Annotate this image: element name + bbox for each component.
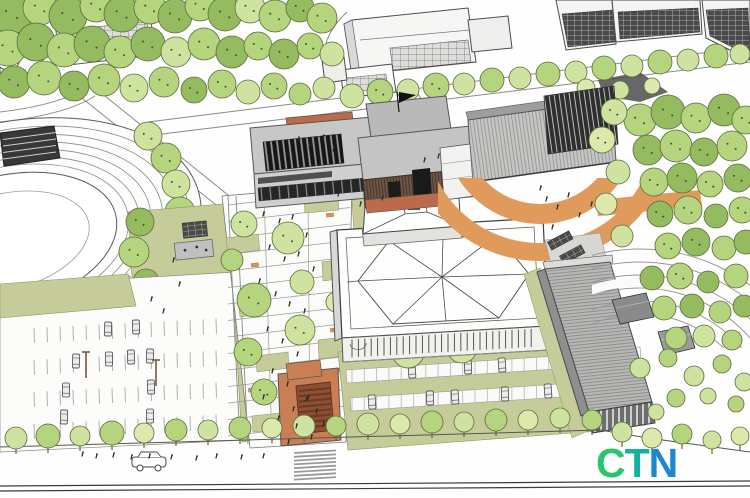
tree (307, 3, 337, 33)
tree (630, 358, 650, 378)
tree (700, 388, 716, 404)
car (132, 320, 139, 334)
tree (509, 67, 531, 89)
tree (697, 271, 719, 293)
tree (712, 236, 736, 260)
tree (680, 294, 704, 318)
tree (131, 27, 165, 61)
tree (606, 160, 630, 184)
tree (655, 233, 681, 259)
tree (724, 264, 748, 288)
tree (601, 99, 627, 125)
tree (713, 355, 731, 373)
bench (251, 263, 258, 267)
tree (188, 28, 220, 60)
car (72, 354, 79, 368)
car (146, 349, 153, 363)
car (544, 384, 552, 398)
tree (367, 79, 393, 105)
tree (340, 84, 364, 108)
car (104, 322, 111, 336)
tree (27, 61, 61, 95)
ctn-logo: CTN (596, 442, 677, 486)
tree (651, 95, 685, 129)
tree (633, 135, 663, 165)
car (451, 390, 459, 404)
car (426, 391, 433, 405)
tree (684, 366, 704, 386)
tree (59, 71, 89, 101)
car (106, 352, 113, 366)
tree (682, 228, 710, 256)
tree (480, 68, 504, 92)
car (147, 409, 154, 423)
tree (151, 143, 181, 173)
tree (536, 62, 560, 86)
tree (592, 56, 616, 80)
tree (659, 349, 677, 367)
tree (704, 204, 728, 228)
tree (320, 42, 344, 66)
tree (640, 168, 668, 196)
tree (269, 39, 299, 69)
tree (681, 103, 711, 133)
tree (0, 66, 30, 98)
logo-letter-n: N (649, 442, 678, 485)
tree (423, 73, 449, 99)
tree (728, 396, 744, 412)
tree (648, 404, 664, 420)
tree (648, 50, 672, 74)
forest-top-left (0, 0, 344, 105)
site-plan-rendering (0, 0, 750, 498)
tree (724, 164, 750, 192)
tree (231, 211, 257, 237)
car (501, 387, 508, 401)
bench (326, 213, 333, 217)
car (63, 383, 70, 397)
tree (652, 296, 676, 320)
tree (251, 379, 277, 405)
tree (120, 74, 148, 102)
tree (297, 33, 323, 59)
tree (216, 36, 248, 68)
car (498, 358, 506, 372)
tree (677, 49, 699, 71)
tree (674, 196, 702, 224)
tree (722, 330, 742, 350)
tree (730, 44, 750, 64)
tree (709, 301, 731, 323)
logo-letter-t: T (625, 442, 649, 485)
tree (693, 325, 715, 347)
tree (88, 64, 120, 96)
tree (237, 283, 271, 317)
tree (272, 222, 304, 254)
tree (644, 78, 660, 94)
tree (261, 73, 287, 99)
tree (665, 327, 687, 349)
tree (313, 77, 335, 99)
parking-lot (0, 271, 256, 452)
tree (161, 37, 191, 67)
tree (236, 80, 260, 104)
tree (221, 249, 243, 271)
car (60, 410, 67, 424)
car (368, 395, 376, 409)
tree (244, 32, 272, 60)
tree (289, 83, 311, 105)
tree (735, 373, 750, 391)
tree (453, 73, 475, 95)
tree (667, 163, 697, 193)
tree (660, 130, 692, 162)
tree (717, 131, 747, 161)
tree (290, 270, 314, 294)
logo-letter-c: C (596, 442, 625, 485)
tree (589, 127, 615, 153)
tree (667, 263, 693, 289)
tree (162, 170, 190, 198)
tree (119, 237, 149, 267)
tree (697, 171, 723, 197)
tree (621, 55, 643, 77)
tree (667, 389, 685, 407)
tree (690, 138, 718, 166)
tree (126, 208, 154, 236)
tree (208, 70, 236, 98)
tree (704, 44, 728, 68)
tree (611, 225, 633, 247)
tree (640, 266, 664, 290)
car (127, 350, 134, 364)
tree (647, 201, 673, 227)
tree (149, 67, 179, 97)
tree (181, 77, 207, 103)
tree (234, 338, 262, 366)
tree (595, 193, 617, 215)
car (147, 380, 154, 394)
tree (285, 315, 315, 345)
